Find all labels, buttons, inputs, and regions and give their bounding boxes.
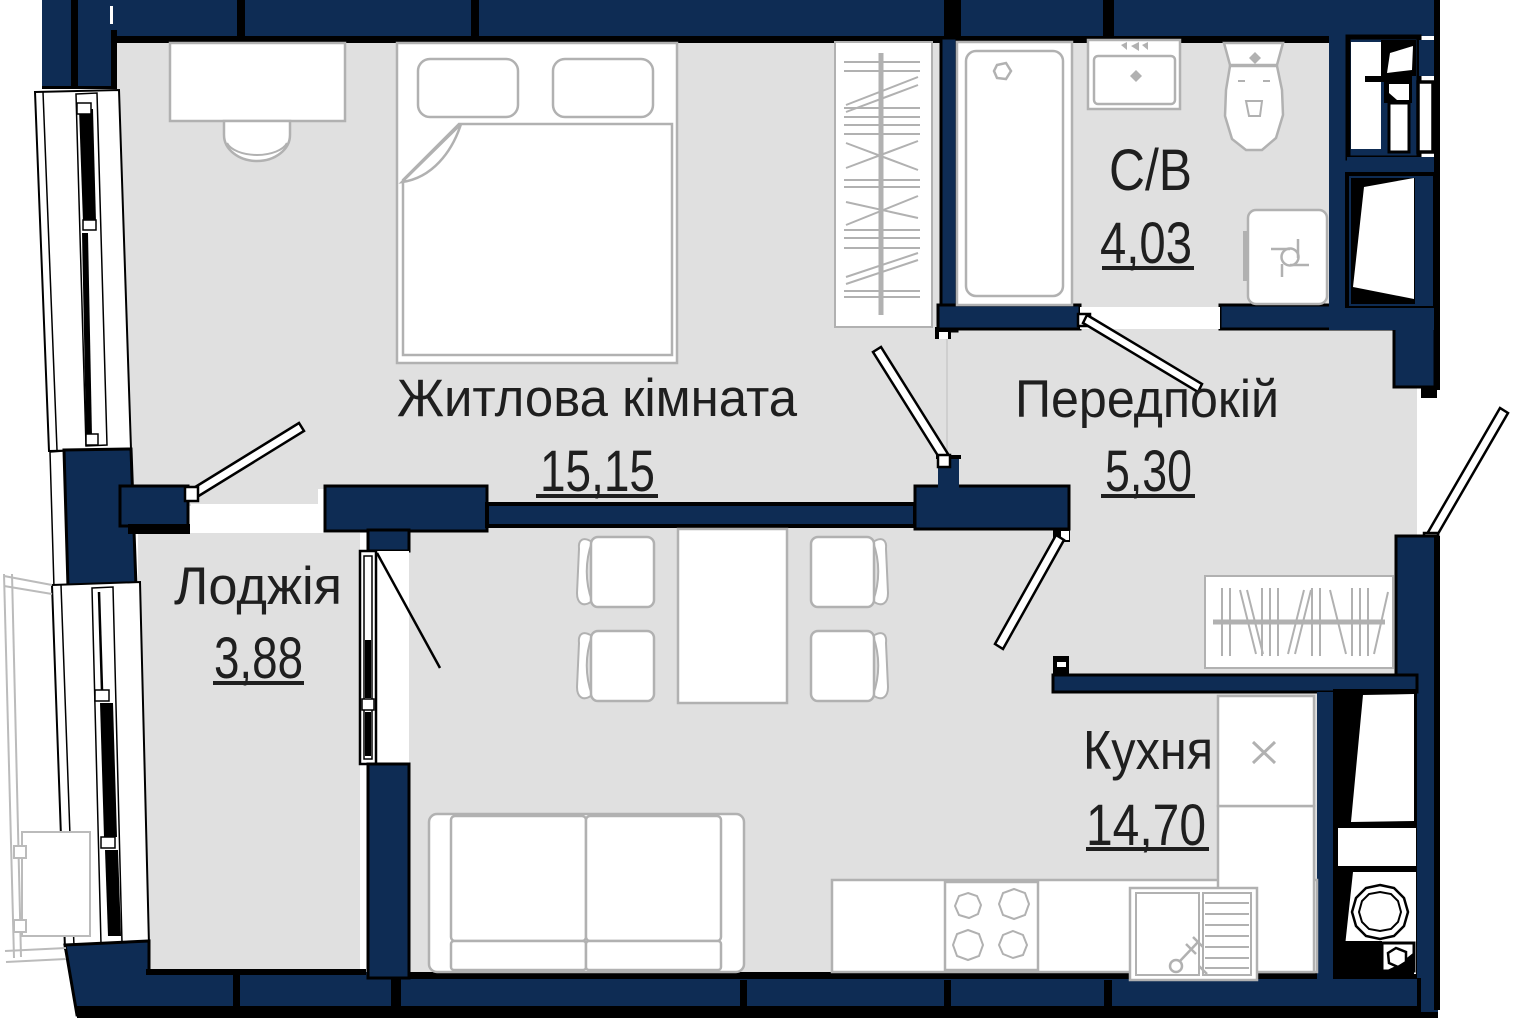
svg-text:Лоджія: Лоджія xyxy=(174,557,342,616)
svg-text:Передпокій: Передпокій xyxy=(1015,370,1279,429)
svg-text:С/В: С/В xyxy=(1109,138,1192,203)
svg-text:Житлова кімната: Житлова кімната xyxy=(397,369,798,428)
svg-text:Кухня: Кухня xyxy=(1083,719,1213,781)
